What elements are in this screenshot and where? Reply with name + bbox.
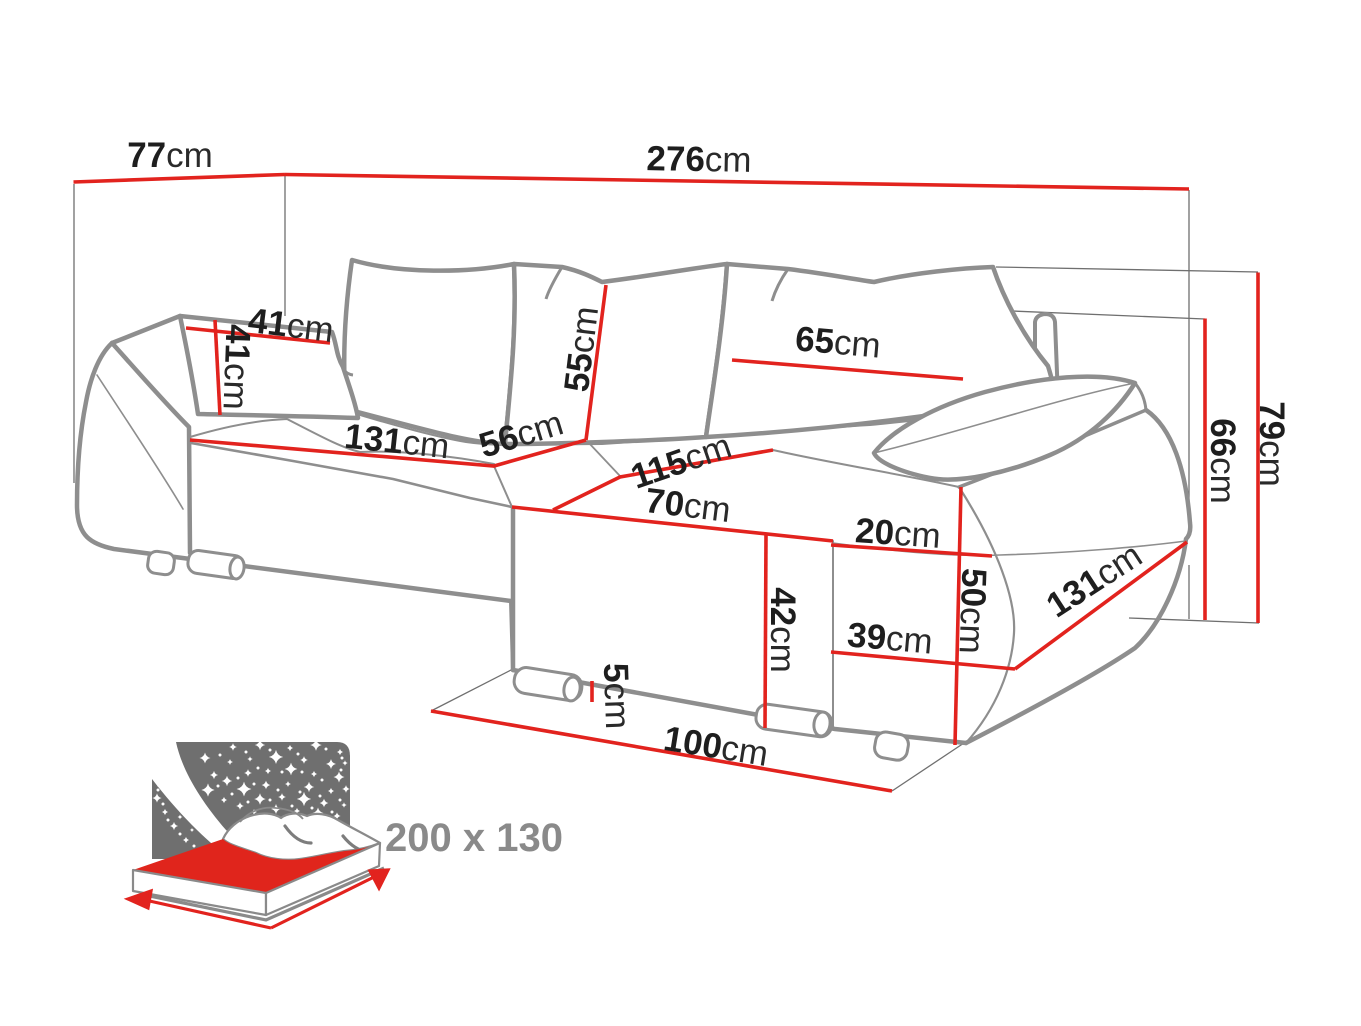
svg-text:39cm: 39cm xyxy=(846,615,935,661)
svg-text:20cm: 20cm xyxy=(854,511,942,556)
svg-text:79cm: 79cm xyxy=(1252,401,1291,487)
svg-text:276cm: 276cm xyxy=(646,139,752,180)
svg-text:50cm: 50cm xyxy=(952,568,994,655)
svg-text:66cm: 66cm xyxy=(1203,418,1242,504)
svg-text:65cm: 65cm xyxy=(794,319,883,365)
svg-text:77cm: 77cm xyxy=(127,136,213,175)
svg-text:41cm: 41cm xyxy=(216,324,258,411)
svg-text:5cm: 5cm xyxy=(596,662,637,729)
svg-text:200 x 130: 200 x 130 xyxy=(385,816,563,860)
svg-text:42cm: 42cm xyxy=(763,587,802,673)
